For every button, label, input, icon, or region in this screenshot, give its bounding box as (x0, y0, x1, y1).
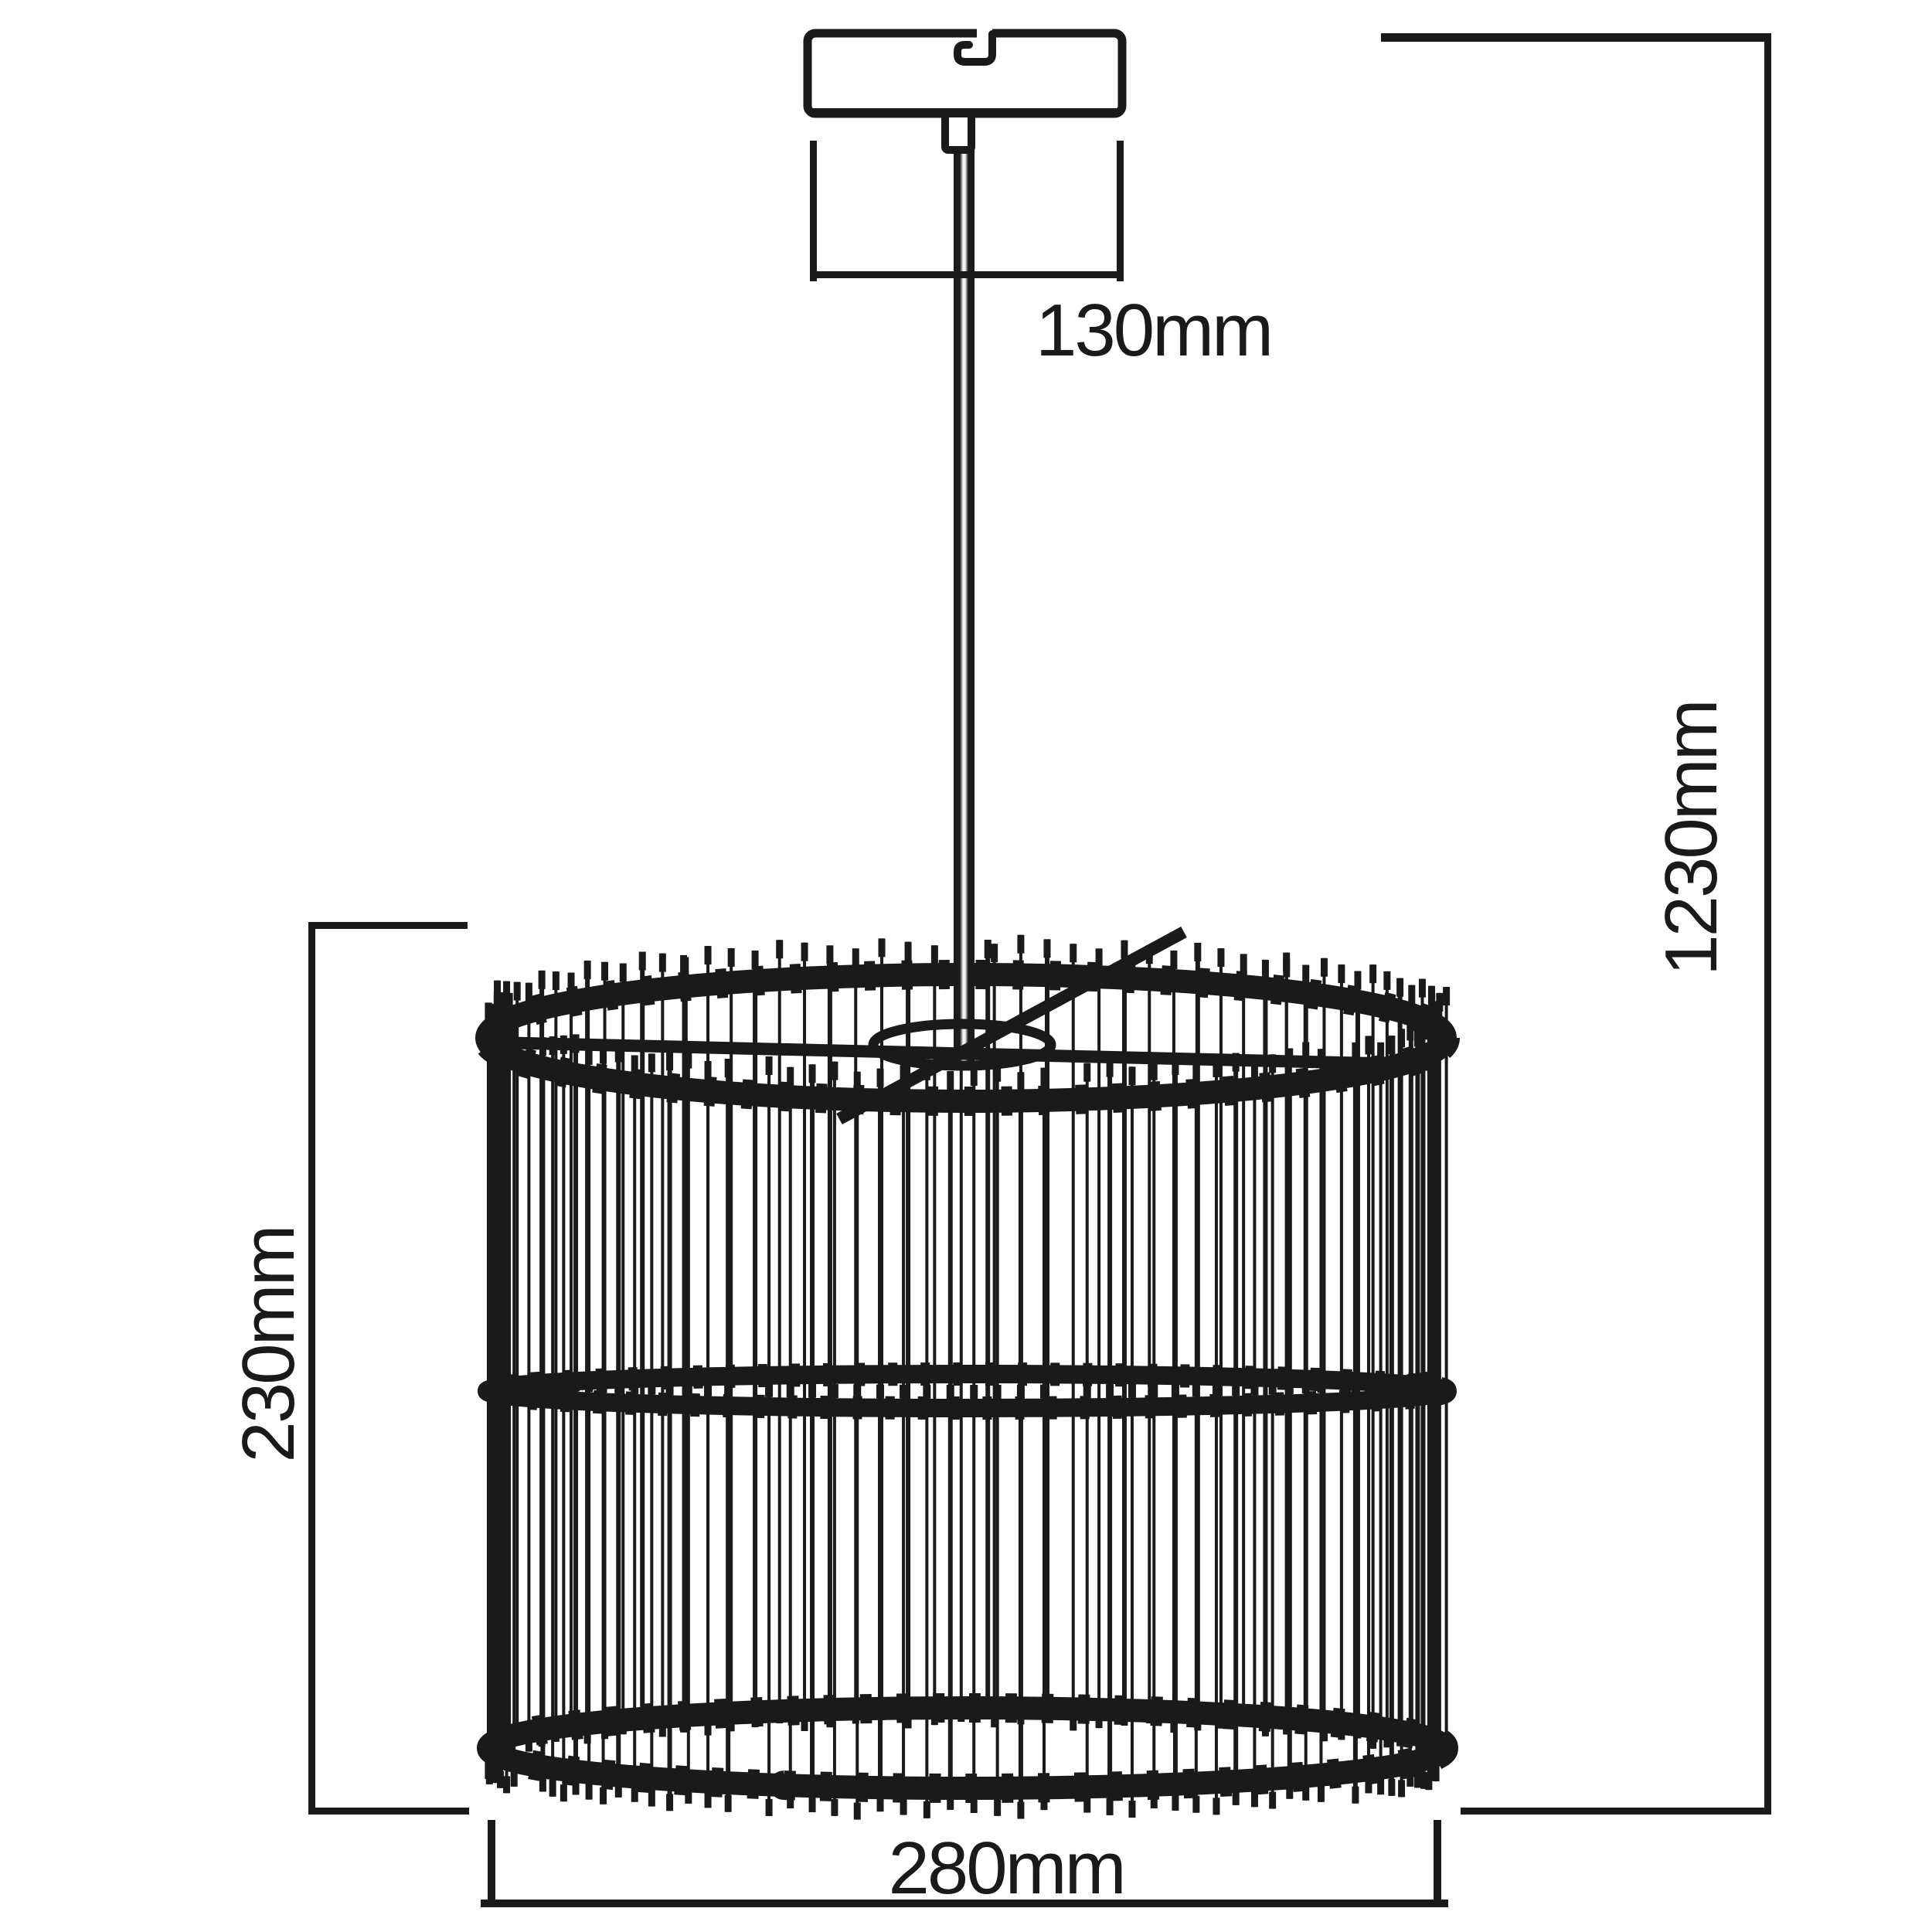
suspension-rod (954, 147, 975, 1064)
shade-diameter-label: 280mm (883, 1830, 1130, 1907)
ceiling-canopy (808, 26, 1122, 150)
pendant-lamp-drawing (0, 0, 1932, 1932)
dimension-diagram: 130mm 1230mm 230mm 280mm (0, 0, 1932, 1932)
shade-height-bracket (308, 922, 469, 1815)
canopy-stem (945, 114, 971, 150)
shade-height-label: 230mm (230, 1213, 308, 1476)
canopy-width-label: 130mm (1036, 292, 1271, 369)
overall-height-label: 1230mm (1653, 684, 1730, 993)
shade-rings (487, 975, 1445, 1788)
